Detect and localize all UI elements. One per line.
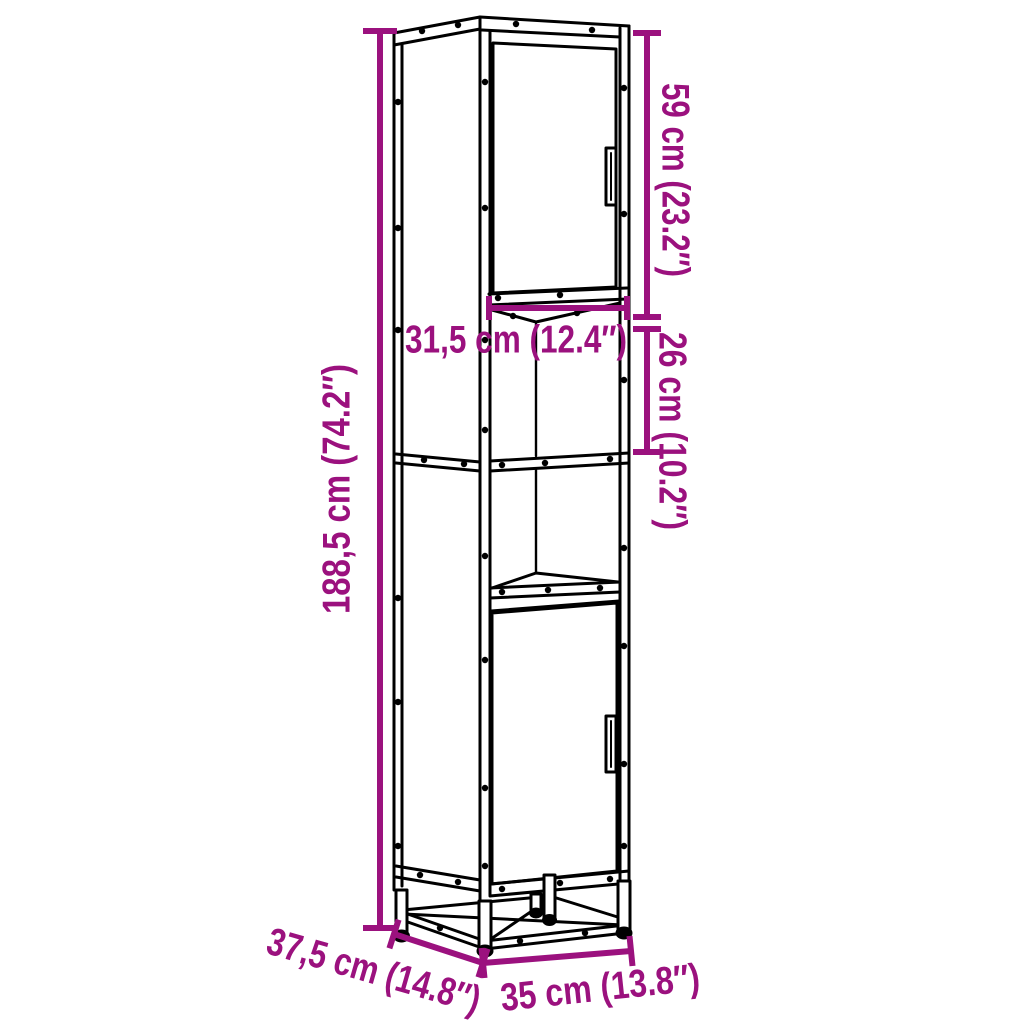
dimension-depth-label: 37,5 cm (14.8″): [262, 920, 485, 1022]
dimension-labels: 188,5 cm (74.2″) 59 cm (23.2″) 26 cm (10…: [262, 83, 702, 1022]
dimension-height: [363, 31, 397, 928]
diagram-canvas: 188,5 cm (74.2″) 59 cm (23.2″) 26 cm (10…: [0, 0, 1024, 1024]
door-handle-bottom: [606, 716, 616, 772]
cabinet-top-door: [493, 43, 616, 293]
dimension-height-line: [363, 31, 397, 928]
cabinet-bottom-door: [492, 603, 617, 884]
dimension-top-door-height-label: 59 cm (23.2″): [653, 83, 696, 277]
dimension-diagram: 188,5 cm (74.2″) 59 cm (23.2″) 26 cm (10…: [0, 0, 1024, 1024]
middle-shelf: [396, 453, 629, 471]
dimension-inner-width-label: 31,5 cm (12.4″): [405, 319, 627, 362]
base-frame: [396, 866, 629, 949]
dimension-height-label: 188,5 cm (74.2″): [316, 364, 359, 614]
dimension-open-section-height-label: 26 cm (10.2″): [650, 332, 693, 530]
door-handle-top: [606, 148, 616, 205]
screw-dots: [395, 21, 627, 944]
cabinet-line-drawing: [394, 17, 631, 956]
dimension-width-label: 35 cm (13.8″): [498, 956, 701, 1020]
